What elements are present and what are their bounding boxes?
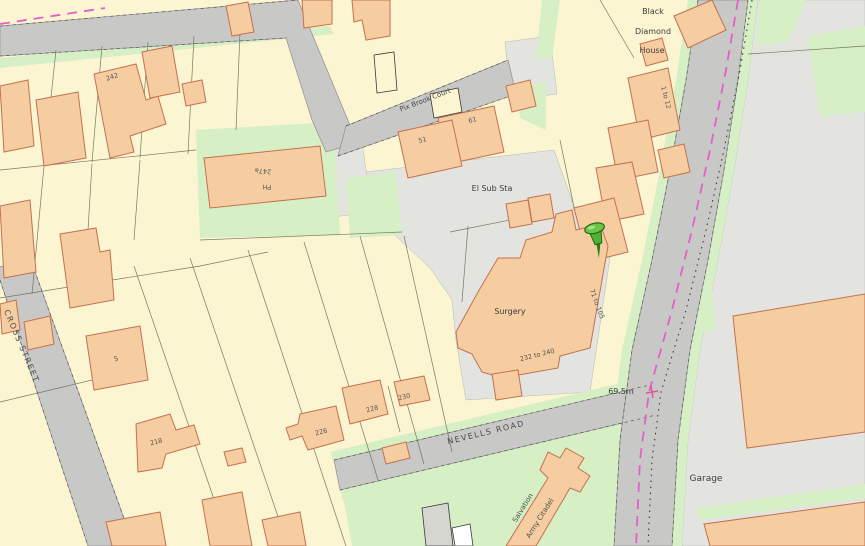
label-247a: 247a — [255, 166, 272, 175]
building-pale — [374, 52, 397, 93]
building-gray — [422, 503, 453, 546]
building — [658, 144, 690, 178]
label-surgery: Surgery — [494, 307, 526, 316]
building — [302, 0, 332, 28]
lawn-east — [346, 172, 402, 238]
building-el-sub-sta — [506, 200, 532, 228]
building — [24, 316, 54, 350]
map-viewport[interactable]: Black Diamond House Pix Brook Court 51 6… — [0, 0, 865, 546]
building — [0, 80, 34, 152]
label-ph: PH — [262, 183, 271, 192]
building-garage-block — [733, 294, 865, 448]
building — [36, 92, 86, 166]
label-black-diamond-1: Black — [642, 7, 664, 16]
building-el-sub-sta — [528, 194, 554, 222]
building-surgery-porch — [492, 370, 522, 400]
building — [0, 200, 36, 278]
label-garage: Garage — [690, 474, 723, 484]
label-spot-height: 69.5m — [608, 387, 634, 396]
map-canvas: Black Diamond House Pix Brook Court 51 6… — [0, 0, 865, 546]
building — [182, 80, 206, 106]
building-white — [452, 524, 473, 546]
label-black-diamond-3: House — [639, 46, 664, 55]
building — [506, 80, 536, 112]
label-black-diamond-2: Diamond — [635, 27, 671, 36]
label-el-sub-sta: El Sub Sta — [472, 184, 513, 193]
